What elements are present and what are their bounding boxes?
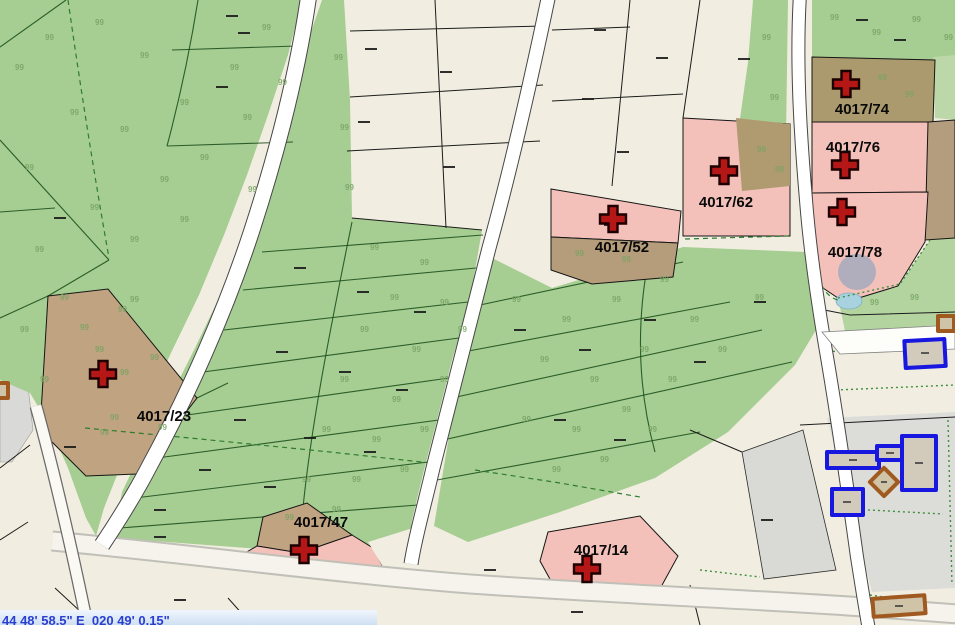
latitude-readout: 44 48' 58.5" <box>2 613 73 625</box>
building-brown <box>0 383 8 398</box>
longitude-readout: E 020 49' 0.15" <box>76 613 170 625</box>
label-4017-74: 4017/74 <box>835 101 890 118</box>
building-brown <box>938 316 954 331</box>
label-4017-62: 4017/62 <box>699 194 753 211</box>
label-4017-23: 4017/23 <box>137 408 191 425</box>
parcel-4017-62-tan <box>736 118 790 191</box>
cadastral-map[interactable]: 99 <box>0 0 955 625</box>
label-4017-78: 4017/78 <box>828 244 882 261</box>
label-4017-47: 4017/47 <box>294 514 348 531</box>
label-4017-76: 4017/76 <box>826 139 880 156</box>
cadastral-map-viewport[interactable]: 99 <box>0 0 955 625</box>
parcel-right-edge-tan[interactable] <box>925 120 955 240</box>
coordinate-statusbar: 44 48' 58.5" E 020 49' 0.15" <box>0 610 377 625</box>
label-4017-14: 4017/14 <box>574 542 629 559</box>
label-4017-52: 4017/52 <box>595 239 649 256</box>
parcel-4017-76[interactable] <box>812 122 933 193</box>
